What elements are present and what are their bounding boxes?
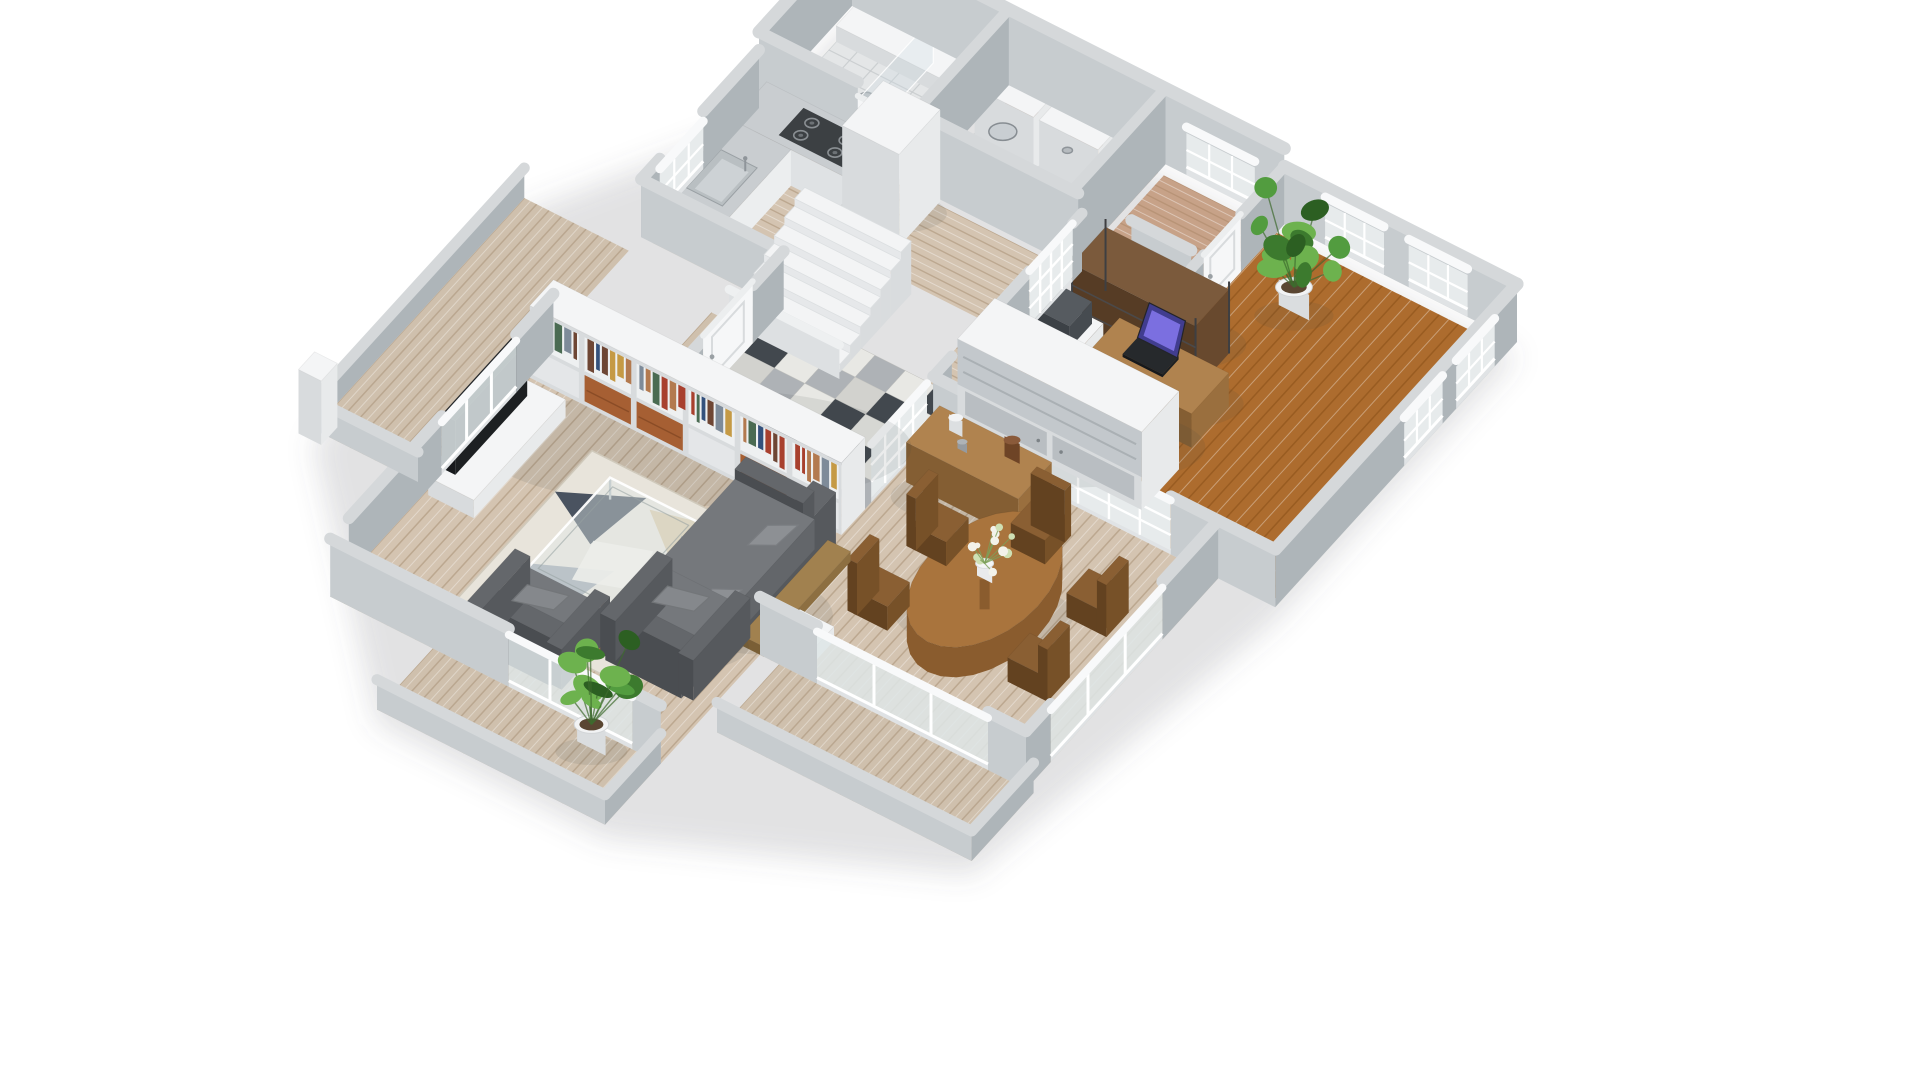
balcony-corner-post (299, 352, 338, 445)
floorplan-3d-render (0, 0, 1920, 1080)
floorplan-page: 3D isometric floor plan render — single-… (0, 0, 1920, 1080)
dryer-knob (1062, 147, 1072, 153)
washer-door (989, 123, 1017, 140)
